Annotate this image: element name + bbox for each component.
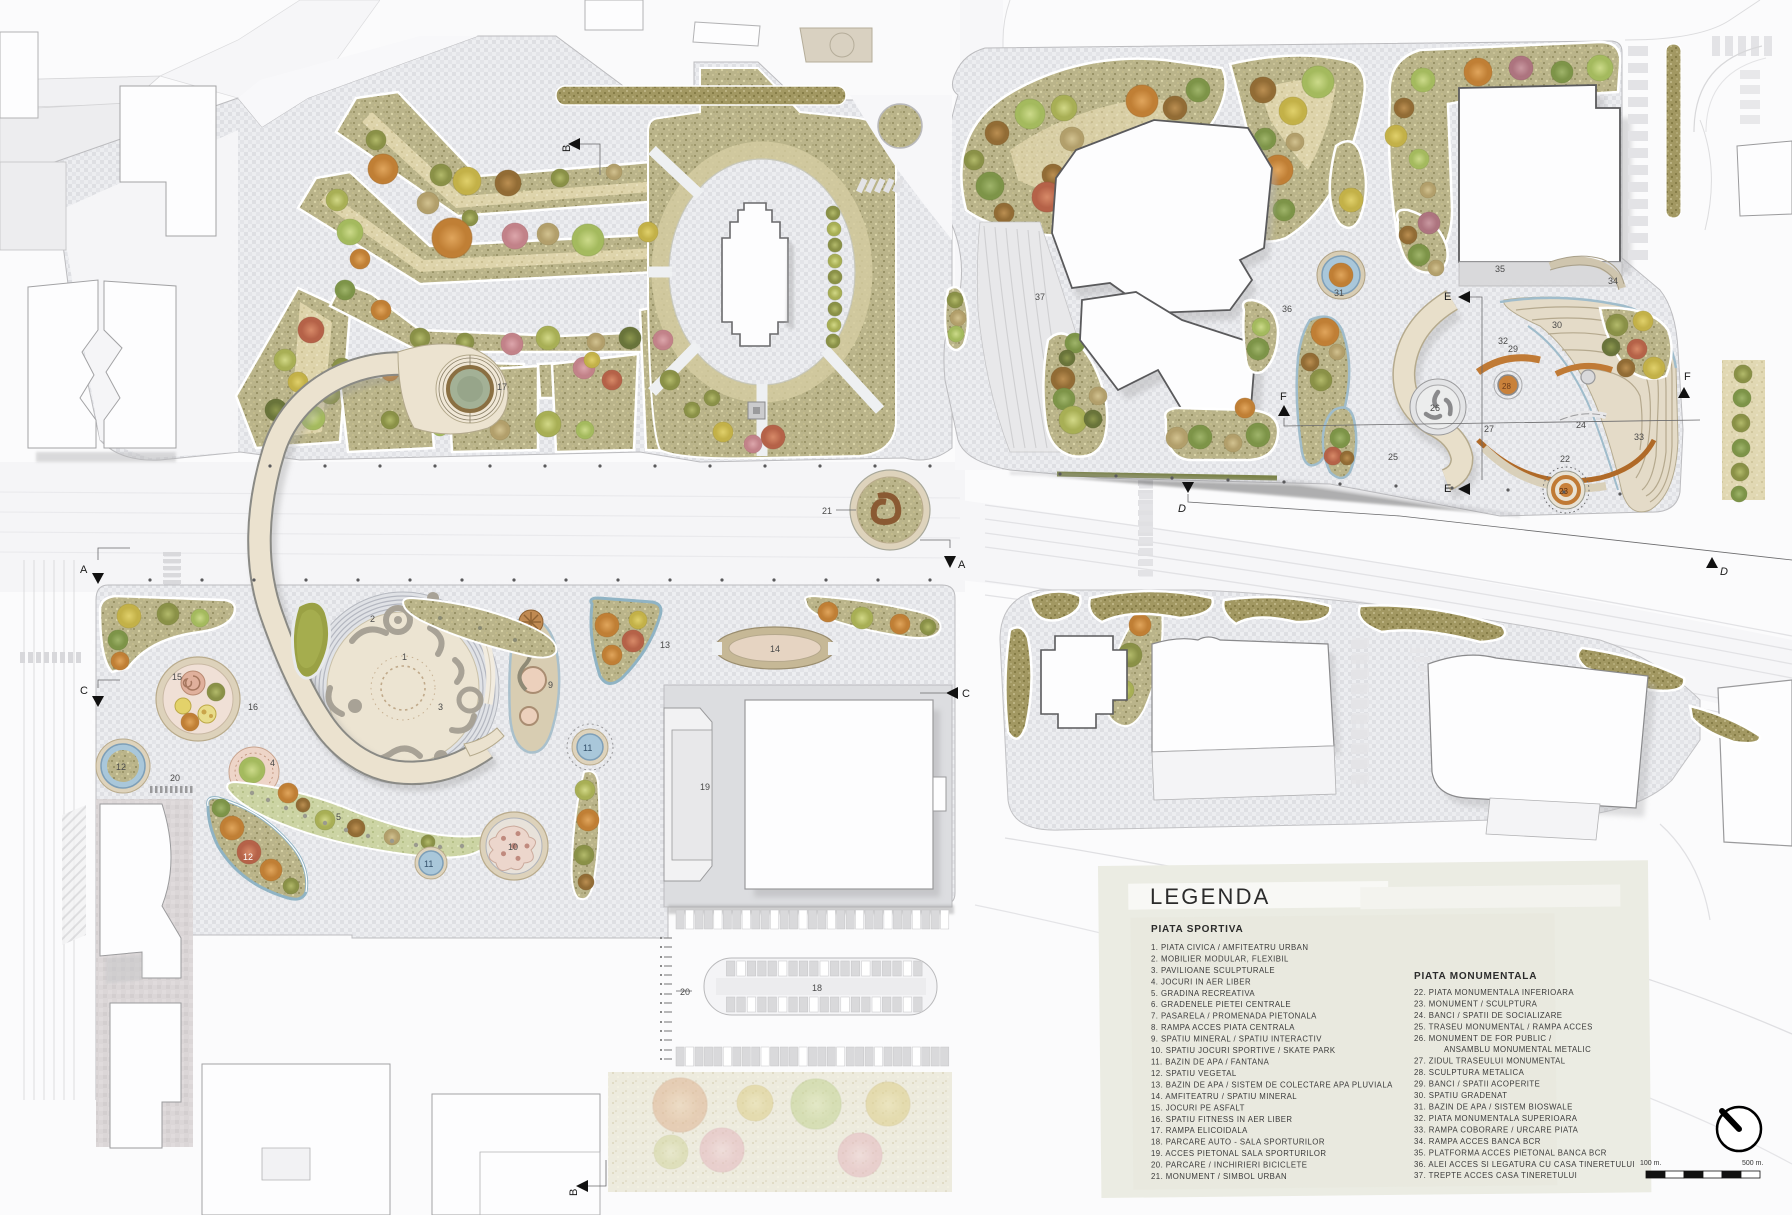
svg-text:28. SCULPTURA METALICA: 28. SCULPTURA METALICA [1414,1068,1525,1077]
svg-text:3: 3 [438,702,443,712]
svg-text:14. AMFITEATRU / SPATIU MINERA: 14. AMFITEATRU / SPATIU MINERAL [1151,1092,1297,1101]
svg-text:22: 22 [1560,454,1570,464]
svg-text:25. TRASEU MONUMENTAL / RAMPA: 25. TRASEU MONUMENTAL / RAMPA ACCES [1414,1022,1593,1031]
svg-text:C: C [962,688,970,700]
svg-text:31. BAZIN DE APA / SISTEM BIOS: 31. BAZIN DE APA / SISTEM BIOSWALE [1414,1103,1573,1112]
svg-text:C: C [80,685,88,697]
svg-text:F: F [1280,391,1287,403]
svg-text:12: 12 [116,762,126,772]
svg-text:26: 26 [1430,403,1440,413]
svg-text:32. PIATA MONUMENTALA SUPERIOA: 32. PIATA MONUMENTALA SUPERIOARA [1414,1114,1578,1123]
svg-text:A: A [80,564,88,576]
svg-text:PIATA MONUMENTALA: PIATA MONUMENTALA [1414,971,1537,982]
svg-text:27. ZIDUL TRASEULUI MONUMENTAL: 27. ZIDUL TRASEULUI MONUMENTAL [1414,1057,1566,1066]
svg-text:21: 21 [822,506,832,516]
svg-text:7. PASARELA / PROMENADA PIETON: 7. PASARELA / PROMENADA PIETONALA [1151,1012,1317,1021]
svg-text:33: 33 [1634,432,1644,442]
svg-text:9. SPATIU MINERAL / SPATIU INT: 9. SPATIU MINERAL / SPATIU INTERACTIV [1151,1035,1322,1044]
svg-text:21. MONUMENT / SIMBOL URBAN: 21. MONUMENT / SIMBOL URBAN [1151,1172,1287,1181]
svg-text:36. ALEI ACCES SI LEGATURA CU: 36. ALEI ACCES SI LEGATURA CU CASA TINER… [1414,1160,1635,1169]
svg-text:A: A [958,559,966,571]
svg-text:6. GRADENELE PIETEI CENTRALE: 6. GRADENELE PIETEI CENTRALE [1151,1000,1291,1009]
svg-text:33. RAMPA COBORARE / URCARE PI: 33. RAMPA COBORARE / URCARE PIATA [1414,1125,1579,1134]
svg-text:20: 20 [680,987,690,997]
svg-text:4: 4 [270,758,275,768]
svg-text:19. ACCES PIETONAL SALA SPORTU: 19. ACCES PIETONAL SALA SPORTURILOR [1151,1149,1327,1158]
svg-text:18: 18 [812,983,822,993]
svg-text:14: 14 [770,644,780,654]
svg-text:12. SPATIU VEGETAL: 12. SPATIU VEGETAL [1151,1069,1237,1078]
svg-text:15: 15 [172,672,182,682]
svg-text:LEGENDA: LEGENDA [1150,884,1271,909]
svg-text:1: 1 [402,652,407,662]
svg-text:E: E [1444,291,1451,303]
svg-text:2. MOBILIER MODULAR, FLEXIBIL: 2. MOBILIER MODULAR, FLEXIBIL [1151,955,1289,964]
svg-text:24. BANCI / SPATII DE SOCIALIZ: 24. BANCI / SPATII DE SOCIALIZARE [1414,1011,1562,1020]
svg-text:32: 32 [1498,336,1508,346]
svg-text:F: F [1684,371,1691,383]
svg-text:27: 27 [1484,424,1494,434]
svg-text:35. PLATFORMA ACCES PIETONAL B: 35. PLATFORMA ACCES PIETONAL BANCA BCR [1414,1148,1607,1157]
svg-text:D: D [1720,566,1728,578]
svg-text:18. PARCARE AUTO - SALA SPORTU: 18. PARCARE AUTO - SALA SPORTURILOR [1151,1138,1325,1147]
svg-text:E: E [1444,483,1451,495]
svg-text:12: 12 [243,852,253,862]
svg-text:19: 19 [700,782,710,792]
svg-text:37: 37 [1035,292,1045,302]
svg-text:16: 16 [248,702,258,712]
svg-text:20. PARCARE / INCHIRIERI BICIC: 20. PARCARE / INCHIRIERI BICICLETE [1151,1161,1307,1170]
svg-text:17. RAMPA ELICOIDALA: 17. RAMPA ELICOIDALA [1151,1126,1248,1135]
svg-text:2: 2 [370,614,375,624]
svg-text:36: 36 [1282,304,1292,314]
svg-text:34: 34 [1608,276,1618,286]
svg-text:100 m.: 100 m. [1640,1160,1661,1167]
svg-text:500 m.: 500 m. [1742,1160,1763,1167]
svg-text:11. BAZIN DE APA / FANTANA: 11. BAZIN DE APA / FANTANA [1151,1058,1270,1067]
svg-text:D: D [1178,503,1186,515]
svg-text:PIATA SPORTIVA: PIATA SPORTIVA [1151,924,1244,935]
svg-text:13: 13 [660,640,670,650]
svg-text:29. BANCI / SPATII ACOPERITE: 29. BANCI / SPATII ACOPERITE [1414,1080,1540,1089]
svg-text:17: 17 [497,382,507,392]
svg-text:10: 10 [508,842,518,852]
svg-text:4. JOCURI IN AER LIBER: 4. JOCURI IN AER LIBER [1151,977,1251,986]
svg-text:8. RAMPA ACCES PIATA CENTRALA: 8. RAMPA ACCES PIATA CENTRALA [1151,1023,1295,1032]
svg-text:30: 30 [1552,320,1562,330]
svg-text:28: 28 [1502,382,1511,391]
svg-text:B: B [568,1189,580,1196]
svg-text:5: 5 [336,812,341,822]
svg-text:3. PAVILIOANE SCULPTURALE: 3. PAVILIOANE SCULPTURALE [1151,966,1275,975]
svg-text:9: 9 [548,680,553,690]
svg-text:5. GRADINA RECREATIVA: 5. GRADINA RECREATIVA [1151,989,1255,998]
svg-text:25: 25 [1388,452,1398,462]
svg-text:35: 35 [1495,264,1505,274]
svg-text:11: 11 [424,859,433,869]
svg-text:ANSAMBLU MONUMENTAL METALIC: ANSAMBLU MONUMENTAL METALIC [1444,1045,1591,1054]
svg-text:30. SPATIU GRADENAT: 30. SPATIU GRADENAT [1414,1091,1507,1100]
svg-text:37. TREPTE ACCES CASA TINERETU: 37. TREPTE ACCES CASA TINERETULUI [1414,1171,1577,1180]
svg-text:11: 11 [583,743,592,753]
svg-text:26. MONUMENT DE FOR PUBLIC /: 26. MONUMENT DE FOR PUBLIC / [1414,1034,1552,1043]
svg-text:23. MONUMENT / SCULPTURA: 23. MONUMENT / SCULPTURA [1414,1000,1538,1009]
svg-text:10. SPATIU JOCURI SPORTIVE / S: 10. SPATIU JOCURI SPORTIVE / SKATE PARK [1151,1046,1336,1055]
svg-text:22. PIATA MONUMENTALA INFERIOA: 22. PIATA MONUMENTALA INFERIOARA [1414,988,1574,997]
svg-text:20: 20 [170,773,180,783]
svg-text:1. PIATA CIVICA / AMFITEATRU U: 1. PIATA CIVICA / AMFITEATRU URBAN [1151,943,1308,952]
svg-text:13. BAZIN DE APA / SISTEM DE: 13. BAZIN DE APA / SISTEM DE COLECTARE A… [1151,1080,1393,1089]
svg-text:29: 29 [1508,344,1518,354]
svg-text:16. SPATIU FITNESS IN AER LIBE: 16. SPATIU FITNESS IN AER LIBER [1151,1115,1292,1124]
svg-text:15. JOCURI PE ASFALT: 15. JOCURI PE ASFALT [1151,1103,1245,1112]
svg-text:34. RAMPA ACCES BANCA BCR: 34. RAMPA ACCES BANCA BCR [1414,1137,1541,1146]
svg-text:B: B [561,145,573,152]
svg-text:31: 31 [1334,288,1344,298]
